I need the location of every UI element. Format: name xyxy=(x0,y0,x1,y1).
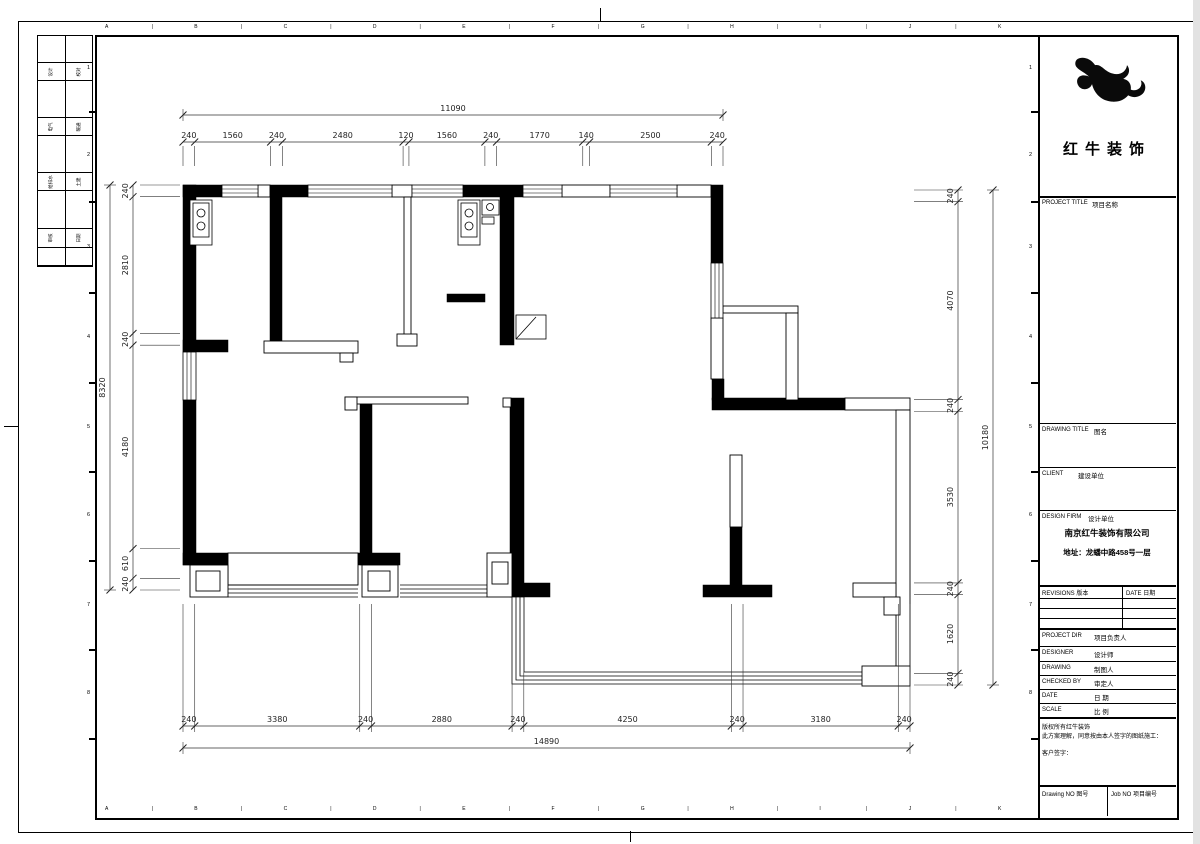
project-title-label: PROJECT TITLE xyxy=(1042,200,1088,206)
signature-cell: 暖通 xyxy=(66,118,93,135)
row-number-right: 7 xyxy=(1029,602,1032,608)
signature-row xyxy=(38,136,92,173)
row-number-right: 8 xyxy=(1029,690,1032,696)
client-sign-label: 客户签字： xyxy=(1042,748,1174,757)
copyright-line1: 版权所有红牛装饰 xyxy=(1042,722,1174,731)
grid-letter: A xyxy=(105,806,108,812)
scale-label: SCALE xyxy=(1042,707,1062,713)
company-name: 红牛装饰 xyxy=(1038,138,1176,159)
grid-dash-left xyxy=(89,560,97,562)
grid-letter: F xyxy=(552,806,555,812)
signature-cell xyxy=(66,81,93,117)
row-number-left: 7 xyxy=(87,602,90,608)
signature-row xyxy=(38,36,92,63)
drawing-title-label: DRAWING TITLE xyxy=(1042,427,1089,433)
grid-dash-right xyxy=(1031,738,1039,740)
signature-label: 审核 xyxy=(48,234,54,243)
grid-separator: | xyxy=(420,806,421,812)
signature-cell xyxy=(38,81,66,117)
signature-cell: 审核 xyxy=(38,229,66,247)
row-number-right: 1 xyxy=(1029,65,1032,71)
design-firm-label: DESIGN FIRM xyxy=(1042,514,1081,520)
signature-cell: 校对 xyxy=(66,63,93,80)
grid-separator: | xyxy=(687,806,688,812)
signature-cell xyxy=(38,248,66,265)
grid-dash-right xyxy=(1031,201,1039,203)
grid-dash-left xyxy=(89,292,97,294)
grid-separator: | xyxy=(420,24,421,30)
grid-dash-right xyxy=(1031,292,1039,294)
designer-label: DESIGNER xyxy=(1042,650,1073,656)
drawing-frame xyxy=(95,35,1179,820)
grid-separator: | xyxy=(241,806,242,812)
grid-letter: K xyxy=(998,806,1001,812)
row-number-right: 6 xyxy=(1029,512,1032,518)
grid-dash-left xyxy=(89,471,97,473)
grid-letter: I xyxy=(819,24,820,30)
row-number-left: 6 xyxy=(87,512,90,518)
grid-dash-right xyxy=(1031,560,1039,562)
row-number-right: 5 xyxy=(1029,424,1032,430)
signature-cell xyxy=(38,191,66,228)
fold-mark-left xyxy=(4,426,18,427)
grid-separator: | xyxy=(955,806,956,812)
signature-cell: 电气 xyxy=(38,118,66,135)
signature-cell xyxy=(66,191,93,228)
fold-mark-bottom xyxy=(630,831,631,842)
grid-dash-right xyxy=(1031,111,1039,113)
signature-label: 日期 xyxy=(76,234,82,243)
firm-address: 地址：龙蟠中路458号一层 xyxy=(1038,547,1176,558)
grid-dash-left xyxy=(89,649,97,651)
revisions-date-header: DATE 日期 xyxy=(1126,588,1155,597)
grid-letter: G xyxy=(641,24,645,30)
signature-cell: 给排水 xyxy=(38,173,66,190)
firm-name: 南京红牛装饰有限公司 xyxy=(1038,527,1176,539)
designer-cn: 设计师 xyxy=(1094,649,1114,659)
grid-separator: | xyxy=(330,806,331,812)
signature-label: 电气 xyxy=(48,122,54,131)
drawing-label: DRAWING xyxy=(1042,665,1071,671)
job-no-label: Job NO 项目编号 xyxy=(1111,789,1157,798)
grid-letter: E xyxy=(462,24,465,30)
grid-separator: | xyxy=(330,24,331,30)
row-number-left: 5 xyxy=(87,424,90,430)
signature-row: 给排水土建 xyxy=(38,173,92,191)
signature-strip: 设计校对电气暖通给排水土建审核日期 xyxy=(37,35,93,267)
grid-letter: B xyxy=(194,806,197,812)
cad-sheet: 2401560240248012015602401770140250024011… xyxy=(0,0,1200,844)
signature-label: 土建 xyxy=(76,177,82,186)
signature-cell: 设计 xyxy=(38,63,66,80)
grid-letter: J xyxy=(909,806,912,812)
signature-cell: 日期 xyxy=(66,229,93,247)
grid-letter: I xyxy=(819,806,820,812)
grid-separator: | xyxy=(866,24,867,30)
checked-by-cn: 审定人 xyxy=(1094,678,1114,688)
project-title-cn: 项目名称 xyxy=(1092,199,1118,209)
signature-row xyxy=(38,248,92,266)
signature-row: 设计校对 xyxy=(38,63,92,81)
signature-cell xyxy=(38,36,66,62)
drawing-cn: 制图人 xyxy=(1094,664,1114,674)
grid-dash-right xyxy=(1031,649,1039,651)
project-dir-label: PROJECT DIR xyxy=(1042,633,1082,639)
signature-label: 设计 xyxy=(48,67,54,76)
grid-letter: E xyxy=(462,806,465,812)
revisions-header: REVISIONS 版本 xyxy=(1042,588,1088,597)
signature-cell: 土建 xyxy=(66,173,93,190)
grid-separator: | xyxy=(955,24,956,30)
grid-letter: K xyxy=(998,24,1001,30)
grid-separator: | xyxy=(598,24,599,30)
signature-label: 校对 xyxy=(76,67,82,76)
signature-row: 电气暖通 xyxy=(38,118,92,136)
grid-letter: H xyxy=(730,24,734,30)
project-dir-cn: 项目负责人 xyxy=(1094,632,1127,642)
grid-letter: C xyxy=(284,24,288,30)
fold-mark-top xyxy=(600,8,601,21)
grid-letter: B xyxy=(194,24,197,30)
grid-separator: | xyxy=(687,24,688,30)
grid-separator: | xyxy=(866,806,867,812)
grid-separator: | xyxy=(509,806,510,812)
scan-edge xyxy=(1193,0,1200,844)
signature-cell xyxy=(66,36,93,62)
grid-dash-left xyxy=(89,382,97,384)
grid-separator: | xyxy=(241,24,242,30)
row-number-right: 3 xyxy=(1029,244,1032,250)
row-number-right: 4 xyxy=(1029,334,1032,340)
signature-label: 暖通 xyxy=(76,122,82,131)
grid-separator: | xyxy=(152,24,153,30)
grid-letter: C xyxy=(284,806,288,812)
company-logo-bull-icon xyxy=(1070,52,1146,130)
grid-separator: | xyxy=(598,806,599,812)
grid-separator: | xyxy=(777,24,778,30)
client-cn: 建设单位 xyxy=(1078,470,1104,480)
grid-dash-right xyxy=(1031,382,1039,384)
drawing-no-label: Drawing NO 图号 xyxy=(1042,789,1088,798)
signature-row xyxy=(38,81,92,118)
grid-letter: G xyxy=(641,806,645,812)
signature-label: 给排水 xyxy=(48,175,54,189)
grid-separator: | xyxy=(509,24,510,30)
grid-letter: D xyxy=(373,806,377,812)
signature-row xyxy=(38,191,92,229)
date-row-label: DATE xyxy=(1042,693,1058,699)
grid-letter: A xyxy=(105,24,108,30)
signature-cell xyxy=(66,248,93,265)
signature-cell xyxy=(66,136,93,172)
grid-letter: J xyxy=(909,24,912,30)
signature-row: 审核日期 xyxy=(38,229,92,248)
grid-dash-right xyxy=(1031,471,1039,473)
client-label: CLIENT xyxy=(1042,471,1063,477)
signature-cell xyxy=(38,136,66,172)
grid-letter: F xyxy=(552,24,555,30)
grid-separator: | xyxy=(777,806,778,812)
design-firm-cn: 设计单位 xyxy=(1088,513,1114,523)
grid-dash-left xyxy=(89,738,97,740)
date-row-cn: 日 期 xyxy=(1094,692,1109,702)
grid-letter: D xyxy=(373,24,377,30)
scale-cn: 比 例 xyxy=(1094,706,1109,716)
row-number-right: 2 xyxy=(1029,152,1032,158)
checked-by-label: CHECKED BY xyxy=(1042,679,1081,685)
grid-letter: H xyxy=(730,806,734,812)
drawing-title-cn: 图名 xyxy=(1094,426,1107,436)
row-number-left: 8 xyxy=(87,690,90,696)
row-number-left: 4 xyxy=(87,334,90,340)
grid-separator: | xyxy=(152,806,153,812)
copyright-line2: 此方案理解，同意按由本人签字的图纸施工： xyxy=(1042,731,1174,740)
